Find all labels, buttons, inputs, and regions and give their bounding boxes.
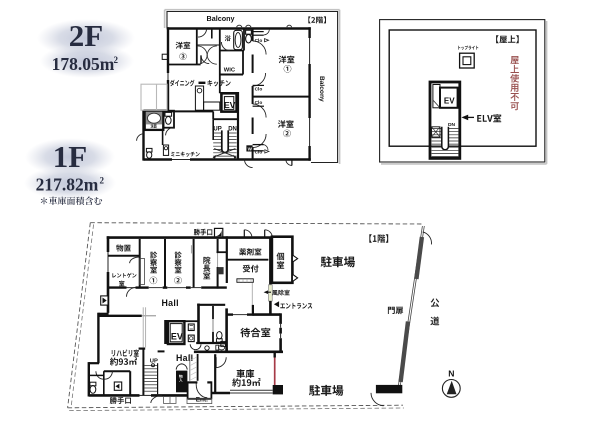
svg-text:2: 2	[114, 55, 119, 65]
svg-text:UP: UP	[213, 127, 221, 133]
svg-text:2: 2	[100, 176, 105, 186]
svg-text:Hall: Hall	[176, 353, 193, 363]
svg-text:Hall: Hall	[162, 298, 179, 308]
svg-text:WIC: WIC	[224, 68, 236, 74]
svg-text:Balcony: Balcony	[318, 76, 325, 102]
svg-text:N: N	[448, 369, 454, 379]
svg-text:DN: DN	[228, 127, 237, 133]
svg-text:178.05m: 178.05m	[52, 54, 115, 74]
svg-text:Clo: Clo	[255, 38, 263, 44]
svg-text:EV: EV	[224, 100, 236, 110]
svg-text:2F: 2F	[69, 18, 103, 53]
svg-text:Clo: Clo	[255, 100, 263, 106]
svg-text:EV: EV	[444, 97, 455, 106]
svg-text:217.82m: 217.82m	[36, 175, 99, 195]
svg-text:Ent.: Ent.	[196, 397, 208, 404]
svg-text:1F: 1F	[53, 139, 87, 174]
svg-text:Balcony: Balcony	[207, 14, 235, 23]
svg-text:DN: DN	[448, 122, 456, 128]
svg-text:Clo: Clo	[255, 87, 263, 93]
svg-text:W: W	[248, 146, 253, 151]
svg-text:EV: EV	[171, 332, 183, 342]
